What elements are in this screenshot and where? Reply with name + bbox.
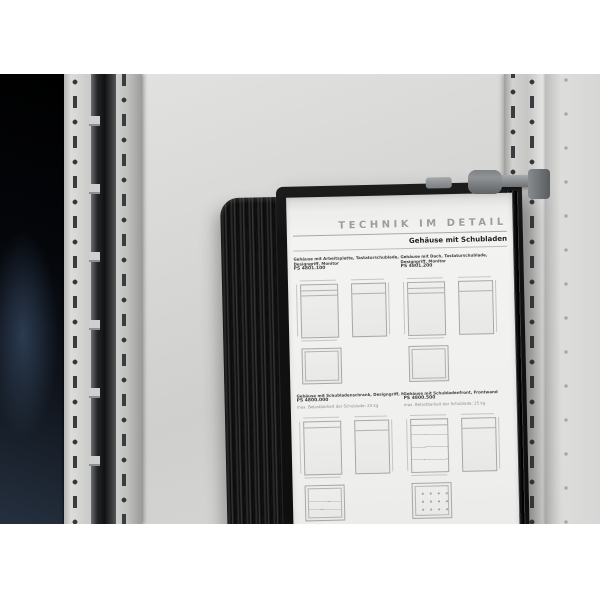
product-photo: TECHNIK IM DETAIL Gehäuse mit Schubladen… [0, 74, 600, 524]
dimension-line [408, 337, 444, 339]
side-panel [546, 74, 600, 524]
front-view-drawing [407, 281, 446, 336]
drawing-section: Gehäuse mit Schubladenschrank, Designgri… [296, 391, 406, 524]
dimension-line [303, 417, 339, 419]
drawing-grid: Gehäuse mit Arbeitsplatte, Tastaturschub… [287, 247, 519, 524]
top-view-drawing [301, 348, 342, 385]
drawing-section: Gehäuse mit Arbeitsplatte, Tastaturschub… [293, 254, 403, 393]
top-view-drawing [408, 345, 449, 382]
rail-hole-column [527, 74, 537, 524]
dimension-line [300, 280, 336, 282]
panel-index-tab[interactable] [426, 177, 452, 189]
rail-hole-column [70, 74, 80, 524]
section-note: max. Belastbarkeit der Schublade: 25 kg [404, 400, 511, 407]
flip-panel-document-holder: TECHNIK IM DETAIL Gehäuse mit Schubladen… [220, 181, 530, 524]
dimension-line [495, 280, 497, 332]
display-frame: TECHNIK IM DETAIL Gehäuse mit Schubladen… [276, 181, 530, 524]
dimension-line [458, 276, 491, 278]
section-note: max. Belastbarkeit der Schublade: 25 kg [297, 402, 404, 409]
dimension-line [304, 477, 340, 479]
rail-channel [91, 74, 116, 524]
detail-view-drawing [305, 485, 346, 522]
side-view-drawing [461, 417, 497, 472]
model-number: PS 4801.200 [401, 262, 508, 270]
front-view-drawing [410, 418, 449, 473]
page-header: TECHNIK IM DETAIL Gehäuse mit Schubladen [286, 193, 513, 252]
dimension-line [411, 474, 447, 476]
front-view-drawing [300, 284, 339, 339]
dimension-line [391, 419, 393, 471]
drawing-section: Gehäuse mit Schubladenfront, Frontwand P… [403, 389, 513, 524]
wall-bracket-rail-clamp [528, 169, 550, 199]
dimension-line [299, 422, 301, 474]
dimension-line [388, 282, 390, 334]
dimension-line [351, 279, 384, 281]
model-number: PS 4801.100 [294, 264, 401, 272]
dimension-line [498, 417, 500, 469]
side-view-drawing [354, 420, 390, 475]
side-view-drawing [458, 280, 494, 335]
rail-clips [89, 74, 100, 524]
cabinet-interior-shadow [0, 74, 66, 524]
wall-bracket-knob[interactable] [468, 170, 502, 194]
front-view-drawing [303, 421, 342, 476]
drawing-section: Gehäuse mit Dach, Tastaturschublade, Des… [400, 252, 510, 391]
dimension-line [461, 413, 494, 415]
mounting-rail-left [64, 74, 142, 524]
dimension-line [410, 414, 446, 416]
side-view-drawing [351, 283, 387, 338]
page-title: TECHNIK IM DETAIL [293, 217, 507, 233]
dimension-line [406, 419, 408, 471]
dimension-line [403, 282, 405, 334]
catalog-page[interactable]: TECHNIK IM DETAIL Gehäuse mit Schubladen… [286, 193, 520, 524]
dimension-line [407, 277, 443, 279]
dimension-line [354, 416, 387, 418]
perforated-top-view-drawing [412, 482, 453, 519]
rail-hole-column [119, 74, 129, 524]
dimension-line [301, 340, 337, 342]
panel-hole-column [562, 74, 570, 524]
dimension-line [296, 285, 298, 337]
